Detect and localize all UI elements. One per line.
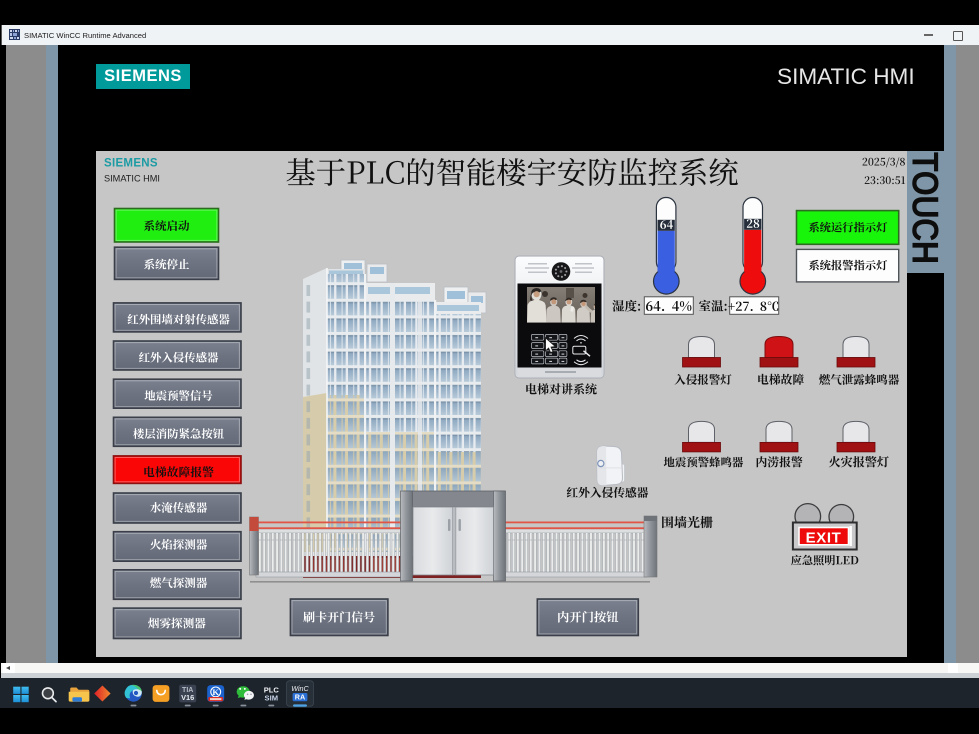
svg-text:RA: RA (295, 693, 305, 702)
svg-text:TOUCH: TOUCH (907, 152, 944, 264)
svg-text:SIM: SIM (265, 694, 279, 703)
svg-text:SIEMENS: SIEMENS (104, 158, 158, 170)
svg-text:SIMATIC HMI: SIMATIC HMI (104, 174, 160, 184)
svg-text:EXIT: EXIT (806, 529, 842, 546)
svg-text:K: K (212, 687, 219, 697)
svg-text:V16: V16 (181, 693, 194, 702)
